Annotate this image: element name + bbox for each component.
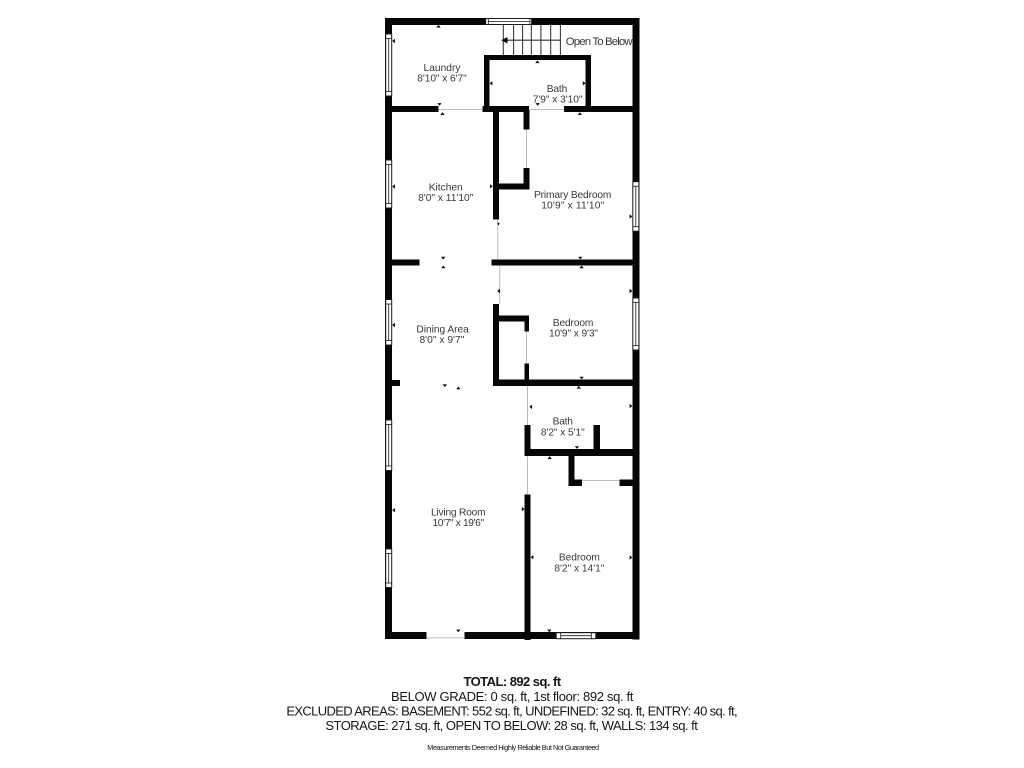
svg-text:STORAGE: 271 sq. ft, OPEN TO B: STORAGE: 271 sq. ft, OPEN TO BELOW: 28 s… (325, 718, 698, 733)
svg-text:Bedroom: Bedroom (553, 318, 594, 329)
svg-text:10'9" x 11'10": 10'9" x 11'10" (541, 201, 604, 212)
svg-text:Open To Below: Open To Below (566, 36, 634, 48)
svg-text:7'9" x 3'10": 7'9" x 3'10" (533, 95, 583, 106)
svg-text:8'0" x 11'10": 8'0" x 11'10" (418, 193, 474, 204)
svg-text:Bedroom: Bedroom (559, 553, 600, 564)
svg-text:8'10" x 6'7": 8'10" x 6'7" (417, 74, 467, 85)
svg-text:Primary Bedroom: Primary Bedroom (534, 190, 611, 201)
svg-text:10'9" x 9'3": 10'9" x 9'3" (549, 329, 598, 340)
svg-text:8'2" x 14'1": 8'2" x 14'1" (554, 563, 604, 574)
svg-text:8'0" x 9'7": 8'0" x 9'7" (419, 335, 464, 346)
svg-text:TOTAL: 892 sq. ft: TOTAL: 892 sq. ft (463, 674, 561, 689)
svg-text:Bath: Bath (553, 417, 573, 428)
svg-text:Measurements Deemed Highly Rel: Measurements Deemed Highly Reliable But … (427, 743, 599, 752)
svg-text:8'2" x 5'1": 8'2" x 5'1" (541, 427, 585, 438)
svg-text:BELOW GRADE: 0 sq. ft, 1st flo: BELOW GRADE: 0 sq. ft, 1st floor: 892 sq… (391, 689, 634, 704)
svg-text:10'7" x 19'6": 10'7" x 19'6" (433, 518, 485, 529)
svg-text:EXCLUDED AREAS: BASEMENT: 552: EXCLUDED AREAS: BASEMENT: 552 sq. ft, UN… (286, 703, 737, 718)
svg-text:Dining Area: Dining Area (416, 324, 469, 335)
svg-text:Kitchen: Kitchen (429, 182, 463, 193)
svg-text:Laundry: Laundry (424, 63, 462, 74)
svg-text:Bath: Bath (547, 84, 568, 95)
svg-text:Living Room: Living Room (431, 508, 486, 519)
